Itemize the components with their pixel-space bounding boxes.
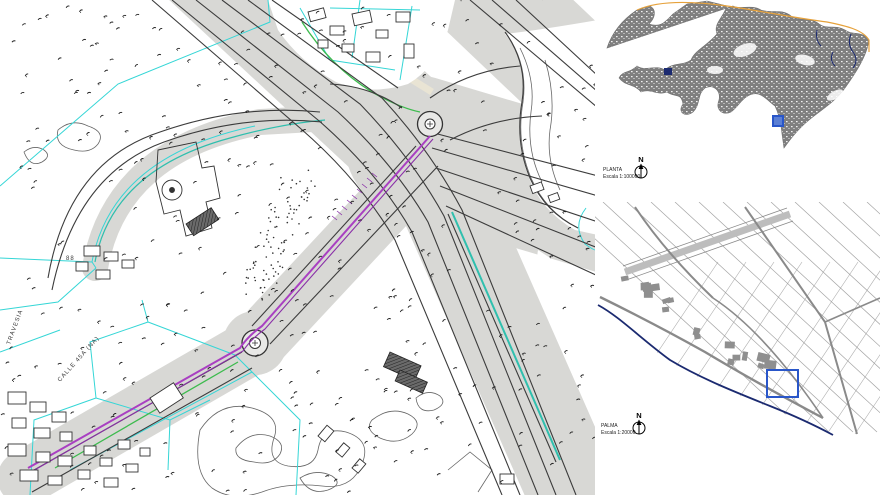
detail-caption-scale: Escala 1:20000 [601, 430, 636, 436]
north-roundabout [418, 112, 443, 137]
overview-caption-title: PLANTA [603, 167, 623, 173]
map-margin [595, 439, 880, 495]
plan-sheet: { "main_map": { "description": "road int… [0, 0, 880, 495]
location-highlight-box [773, 116, 783, 126]
detail-inset-svg: PALMA Escala 1:20000 N [595, 202, 880, 495]
overview-inset-map: PLANTA Escala 1:100000 N [595, 0, 880, 202]
overview-caption-scale: Escala 1:100000 [603, 174, 640, 180]
main-plan-svg: CALLE 45A (NA) TRAVESIA 88 [0, 0, 598, 495]
street-label-88: 88 [66, 256, 75, 262]
overview-inset-svg: PLANTA Escala 1:100000 N [595, 0, 880, 202]
main-plan-map: CALLE 45A (NA) TRAVESIA 88 [0, 0, 598, 495]
port-area [664, 68, 672, 75]
detail-inset-map: PALMA Escala 1:20000 N [595, 202, 880, 495]
south-roundabout [242, 330, 268, 356]
detail-caption-title: PALMA [601, 423, 618, 429]
svg-text:N: N [638, 155, 643, 164]
svg-text:N: N [636, 411, 641, 420]
